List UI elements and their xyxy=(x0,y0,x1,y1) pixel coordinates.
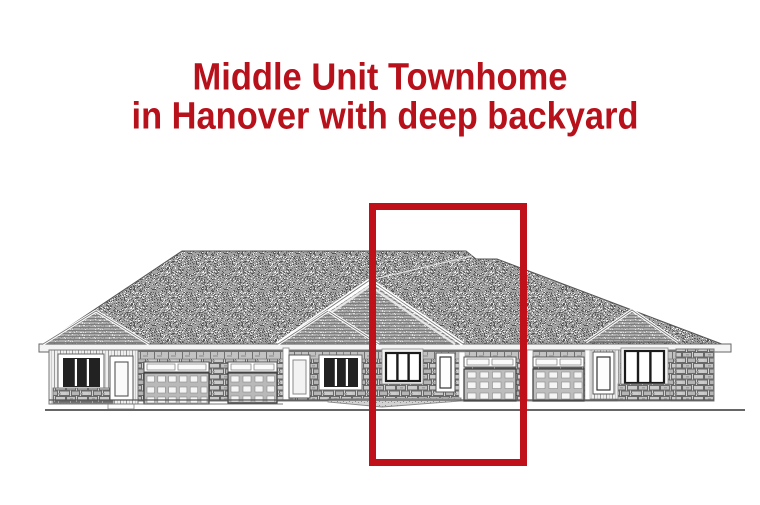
svg-text:in Hanover with deep backyard: in Hanover with deep backyard xyxy=(132,96,639,138)
svg-text:Middle Unit Townhome: Middle Unit Townhome xyxy=(193,57,568,99)
